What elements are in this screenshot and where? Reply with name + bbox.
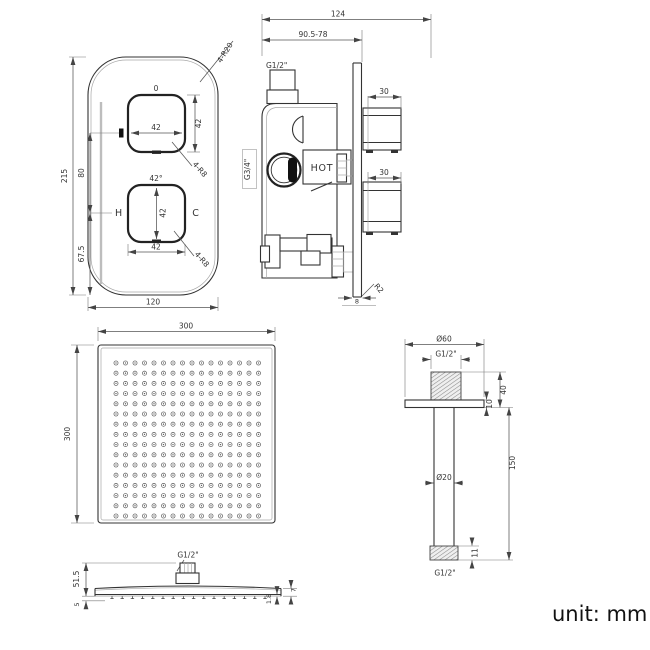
view-valve-side: 124 90.5-78 G1/2" HOT G3/4" xyxy=(243,10,432,306)
thread-flange-height-label: 40 xyxy=(499,385,508,395)
arm-bottom-thread xyxy=(430,546,458,560)
head-width-label: 300 xyxy=(179,322,194,331)
bottom-offset-label: 67.5 xyxy=(77,245,86,262)
bottom-thread-length-label: 11 xyxy=(471,548,480,558)
arm-bottom-thread-label: G1/2" xyxy=(434,569,455,578)
flange-diameter-label: Ø60 xyxy=(436,335,452,344)
top-port-thread-label: G1/2" xyxy=(266,61,287,70)
inlet-thread-label: G3/4" xyxy=(243,159,252,180)
handle-indicator xyxy=(119,129,124,138)
plate-corner-radius-label: 4-R20 xyxy=(215,41,235,65)
plate-height-label: 215 xyxy=(60,169,69,184)
plate-radius-label: R2 xyxy=(372,282,385,296)
rim-height-label: 7 xyxy=(290,588,298,592)
shower-technical-drawing: 4-R20 215 80 67.5 0 42 42 4-R8 42° 42 H … xyxy=(0,0,650,650)
view-valve-front: 4-R20 215 80 67.5 0 42 42 4-R8 42° 42 H … xyxy=(60,41,235,311)
bottom-knob-side xyxy=(363,182,401,232)
connector-height-label: 51.5 xyxy=(72,570,81,587)
top-knob-position-label: 0 xyxy=(154,84,159,93)
bottom-knob-height-label: 42 xyxy=(159,208,168,218)
overall-depth-label: 124 xyxy=(331,10,346,19)
top-knob-height-label: 42 xyxy=(194,119,203,129)
head-height-label: 300 xyxy=(63,427,72,442)
head-profile xyxy=(95,586,281,589)
tube-diameter-label: Ø20 xyxy=(436,473,452,482)
bottom-knob-angle-label: 42° xyxy=(149,174,163,183)
top-inlet-port xyxy=(270,70,295,90)
adjustable-depth-label: 90.5-78 xyxy=(299,30,328,39)
hot-marker: H xyxy=(115,208,123,219)
arm-top-thread-label: G1/2" xyxy=(435,350,456,359)
knob-spacing-label: 80 xyxy=(77,168,86,178)
cold-marker: C xyxy=(192,208,199,219)
side-nozzle-ticks xyxy=(110,596,266,598)
top-knob-depth-label: 30 xyxy=(379,87,389,96)
view-head-side: G1/2" 51.5 5 7 1.8 xyxy=(72,551,298,609)
drop-length-label: 150 xyxy=(508,456,517,471)
bottom-knob-width-label: 42 xyxy=(151,243,161,252)
plate-thickness-label: 8 xyxy=(355,298,359,306)
arm-top-thread xyxy=(431,372,461,400)
panel-thickness-label: 1.8 xyxy=(265,594,273,604)
connector-thread-label: G1/2" xyxy=(177,551,198,560)
bottom-knob-depth-label: 30 xyxy=(379,168,389,177)
unit-label: unit: mm xyxy=(552,602,647,626)
flange-thickness-label: 10 xyxy=(485,399,494,409)
plate-width-label: 120 xyxy=(146,298,161,307)
top-knob-side xyxy=(363,108,401,150)
edge-drop-label: 5 xyxy=(73,602,81,606)
hot-label: HOT xyxy=(311,163,334,174)
view-head-top: 300 300 xyxy=(63,322,275,524)
head-connector xyxy=(180,563,195,573)
view-arm: Ø60 G1/2" 40 10 Ø20 150 11 G1/2" xyxy=(405,335,517,578)
top-knob-width-label: 42 xyxy=(151,123,161,132)
ceiling-flange xyxy=(405,400,484,408)
